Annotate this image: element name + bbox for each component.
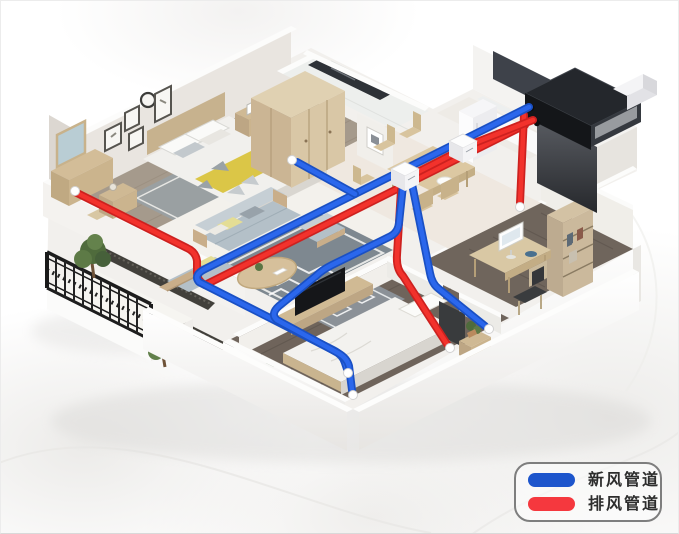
vent-fresh-master-bedroom bbox=[288, 156, 297, 165]
fresh-air-swatch bbox=[528, 473, 575, 487]
vent-fresh-living bbox=[344, 369, 353, 378]
apartment-ventilation-illustration: 新风管道 排风管道 bbox=[0, 0, 679, 534]
isometric-scene bbox=[1, 1, 679, 534]
vent-exhaust-master-bedroom bbox=[71, 187, 80, 196]
exhaust-air-swatch bbox=[528, 497, 575, 511]
wall-clock bbox=[141, 93, 155, 107]
exhaust-air-label: 排风管道 bbox=[588, 496, 660, 512]
fresh-air-label: 新风管道 bbox=[588, 472, 660, 488]
vent-exhaust-study bbox=[516, 203, 525, 212]
bookshelf bbox=[547, 200, 593, 297]
vent-fresh-study bbox=[485, 325, 494, 334]
legend-row-exhaust-air: 排风管道 bbox=[528, 496, 648, 512]
vent-fresh-second-bedroom bbox=[349, 391, 358, 400]
legend-row-fresh-air: 新风管道 bbox=[528, 472, 648, 488]
mousepad bbox=[525, 251, 537, 257]
vent-exhaust-second-bedroom bbox=[446, 344, 455, 353]
legend: 新风管道 排风管道 bbox=[514, 462, 662, 522]
